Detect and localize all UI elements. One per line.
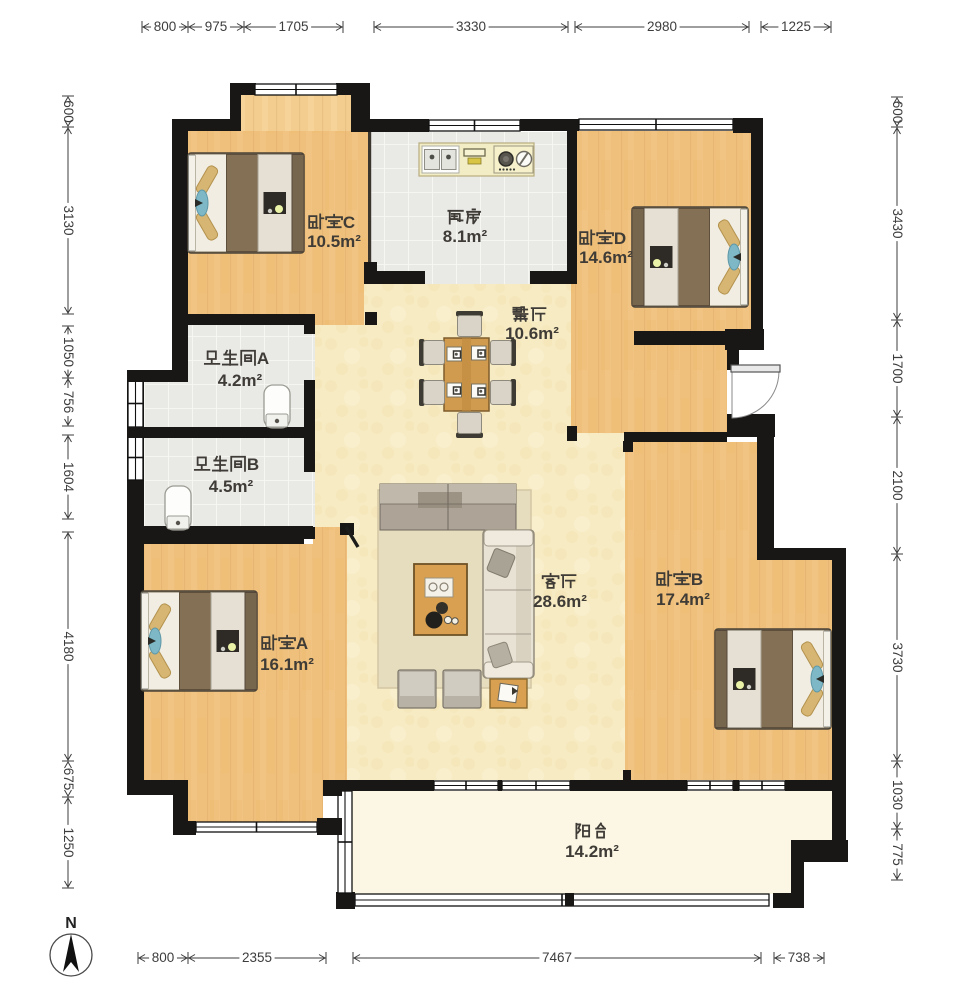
- svg-text:775: 775: [890, 843, 905, 866]
- svg-text:D: D: [614, 229, 626, 248]
- svg-text:675: 675: [61, 768, 76, 791]
- svg-text:1050: 1050: [61, 337, 76, 367]
- svg-text:4180: 4180: [61, 631, 76, 661]
- svg-text:7467: 7467: [542, 950, 572, 965]
- svg-text:16.1m²: 16.1m²: [260, 655, 314, 674]
- svg-text:14.6m²: 14.6m²: [579, 248, 633, 267]
- svg-text:B: B: [691, 570, 703, 589]
- svg-text:600: 600: [890, 101, 905, 124]
- svg-text:B: B: [247, 455, 259, 474]
- svg-text:8.1m²: 8.1m²: [443, 227, 488, 246]
- svg-text:1225: 1225: [781, 19, 811, 34]
- svg-text:3130: 3130: [61, 205, 76, 235]
- svg-text:28.6m²: 28.6m²: [533, 592, 587, 611]
- svg-text:10.5m²: 10.5m²: [307, 232, 361, 251]
- svg-text:1604: 1604: [61, 462, 76, 493]
- svg-text:1705: 1705: [278, 19, 308, 34]
- svg-text:800: 800: [154, 19, 177, 34]
- svg-text:17.4m²: 17.4m²: [656, 590, 710, 609]
- svg-text:1250: 1250: [61, 827, 76, 857]
- svg-text:3330: 3330: [456, 19, 486, 34]
- svg-text:2355: 2355: [242, 950, 272, 965]
- svg-text:N: N: [65, 915, 77, 932]
- svg-text:4.5m²: 4.5m²: [209, 477, 254, 496]
- svg-text:A: A: [296, 634, 308, 653]
- svg-text:2100: 2100: [890, 470, 905, 500]
- svg-text:600: 600: [61, 100, 76, 123]
- svg-text:756: 756: [61, 391, 76, 414]
- svg-text:3430: 3430: [890, 208, 905, 238]
- svg-text:800: 800: [152, 950, 175, 965]
- svg-text:4.2m²: 4.2m²: [218, 371, 263, 390]
- svg-text:A: A: [257, 349, 269, 368]
- svg-text:10.6m²: 10.6m²: [505, 324, 559, 343]
- svg-text:975: 975: [205, 19, 228, 34]
- svg-text:738: 738: [788, 950, 811, 965]
- svg-text:14.2m²: 14.2m²: [565, 842, 619, 861]
- svg-text:2980: 2980: [647, 19, 677, 34]
- svg-text:1700: 1700: [890, 353, 905, 383]
- svg-text:3730: 3730: [890, 642, 905, 672]
- svg-text:C: C: [343, 213, 355, 232]
- svg-text:1030: 1030: [890, 780, 905, 810]
